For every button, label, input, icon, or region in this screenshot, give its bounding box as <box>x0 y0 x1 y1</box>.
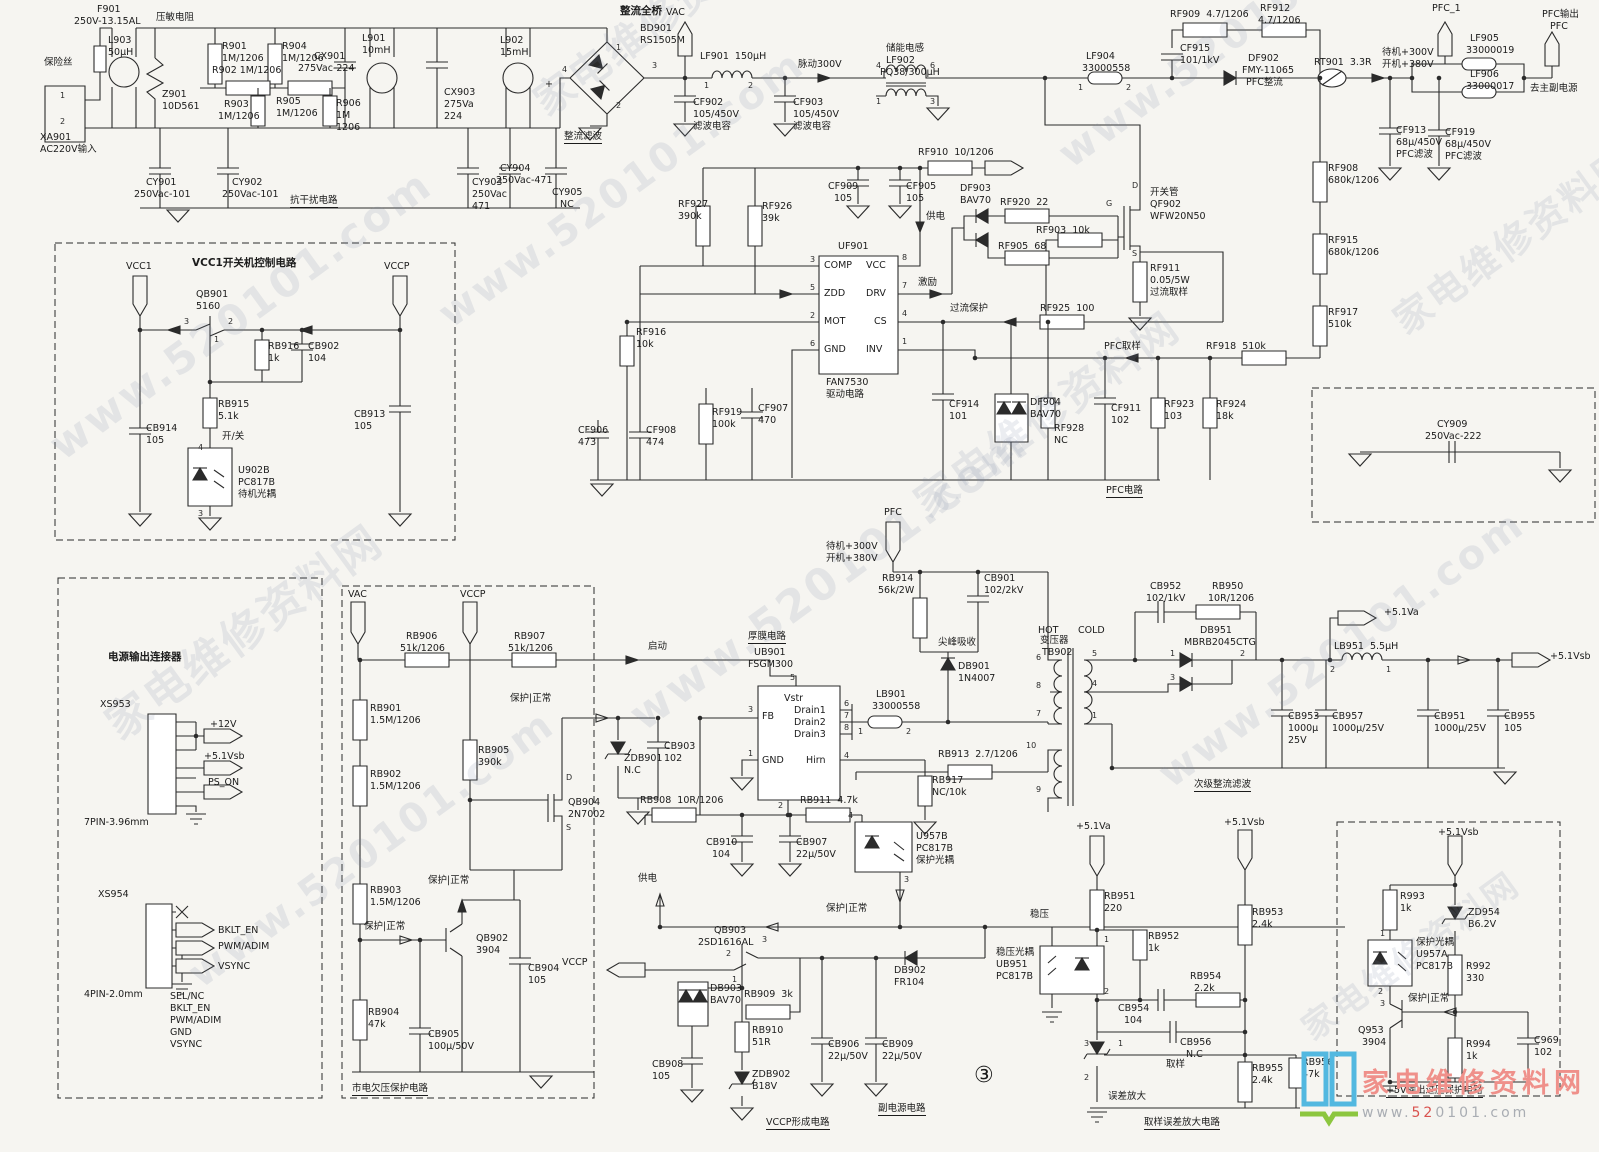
component-label: 22µ/50V <box>828 1052 868 1062</box>
component-label: CB914 <box>146 424 177 434</box>
component-label: RF903 10k <box>1036 226 1090 236</box>
component-label: XS954 <box>98 890 129 900</box>
component-label: CF902 <box>693 98 723 108</box>
component-label: 51k/1206 <box>400 644 445 654</box>
component-label: CB904 <box>528 964 559 974</box>
component-label: RF911 <box>1150 264 1180 274</box>
component-label: DB903 <box>710 984 742 994</box>
component-label: UB951 <box>996 960 1028 970</box>
component-label: RB908 10R/1206 <box>640 796 723 806</box>
component-label: 3 <box>1380 1000 1385 1008</box>
component-label: U902B <box>238 466 270 476</box>
component-label: PC817B <box>238 478 275 488</box>
component-label: LB901 <box>876 690 906 700</box>
component-label: G <box>1106 200 1112 208</box>
component-label: CF903 <box>793 98 823 108</box>
component-label: QB901 <box>196 290 228 300</box>
component-label: 2 <box>1126 84 1131 92</box>
component-label: CF905 <box>906 182 936 192</box>
component-label: RF912 <box>1260 4 1290 14</box>
component-label: 1 <box>902 338 907 346</box>
component-label: 56k/2W <box>878 586 914 596</box>
component-label: 3 <box>748 706 753 714</box>
component-label: QB902 <box>476 934 508 944</box>
component-label: 0.05/5W <box>1150 276 1190 286</box>
component-label: 250Vac-101 <box>222 190 279 200</box>
component-label: CF919 <box>1445 128 1475 138</box>
component-label: ZDB902 <box>752 1070 790 1080</box>
component-label: 滤波电容 <box>793 122 831 132</box>
component-label: 102/1kV <box>1146 594 1185 604</box>
component-label: ZDD <box>824 289 845 299</box>
component-label: 开机+380V <box>1382 60 1434 70</box>
component-label: 7 <box>844 712 849 720</box>
component-label: U957B <box>916 832 948 842</box>
component-label: Z901 <box>162 90 187 100</box>
component-label: 104 <box>1124 1016 1142 1026</box>
component-label: 整流滤波 <box>564 132 602 144</box>
component-label: VSYNC <box>170 1040 202 1050</box>
component-label: FMY-11065 <box>1242 66 1294 76</box>
component-label: RS1505M <box>640 36 685 46</box>
component-label: S <box>566 824 571 832</box>
component-label: RB904 <box>368 1008 399 1018</box>
component-label: 4 <box>876 62 881 70</box>
component-label: PWM/ADIM <box>218 942 269 952</box>
component-label: 2 <box>906 728 911 736</box>
component-label: Hirn <box>806 756 826 766</box>
component-label: 1k <box>1400 904 1412 914</box>
component-label: 1M <box>336 111 350 121</box>
component-label: 2.2k <box>1194 984 1215 994</box>
component-label: FB <box>762 712 774 722</box>
component-label: COMP <box>824 261 852 271</box>
component-label: 8 <box>902 254 907 262</box>
component-label: 1 <box>1078 84 1083 92</box>
component-label: RB914 <box>882 574 913 584</box>
component-label: 105 <box>834 194 852 204</box>
component-label: 7 <box>1036 710 1041 718</box>
component-label: VCC1开关机控制电路 <box>192 258 296 269</box>
schematic-wires <box>0 0 1599 1152</box>
component-label: 680k/1206 <box>1328 248 1379 258</box>
component-label: GND <box>762 756 784 766</box>
component-label: +5.1Vsb <box>1438 828 1479 838</box>
component-label: RB917 <box>932 776 963 786</box>
component-label: RF909 4.7/1206 <box>1170 10 1249 20</box>
component-label: CB906 <box>828 1040 859 1050</box>
component-label: GND <box>824 345 846 355</box>
component-label: QF902 <box>1150 200 1181 210</box>
component-label: CB913 <box>354 410 385 420</box>
component-label: 5160 <box>196 302 220 312</box>
component-label: 10R/1206 <box>1208 594 1254 604</box>
component-label: 过流取样 <box>1150 288 1188 298</box>
component-label: 1 <box>60 92 65 100</box>
component-label: DRV <box>866 289 886 299</box>
component-label: 启动 <box>648 642 667 652</box>
component-label: 1.5M/1206 <box>370 716 421 726</box>
component-label: PC817B <box>916 844 953 854</box>
component-label: R901 <box>222 42 247 52</box>
component-label: 2 <box>616 102 621 110</box>
component-label: 取样误差放大电路 <box>1144 1118 1220 1130</box>
component-label: 50µH <box>108 48 133 58</box>
component-label: D <box>566 774 572 782</box>
component-label: L903 <box>108 36 131 46</box>
component-label: 103 <box>1164 412 1182 422</box>
component-label: 供电 <box>638 874 657 884</box>
component-label: MOT <box>824 317 845 327</box>
component-label: 2N7002 <box>568 810 605 820</box>
component-label: CB953 <box>1288 712 1319 722</box>
component-label: UF901 <box>838 242 869 252</box>
component-label: 25V <box>1288 736 1307 746</box>
component-label: 保护|正常 <box>1408 994 1449 1004</box>
component-label: DF903 <box>960 184 991 194</box>
component-label: 4 <box>902 310 907 318</box>
component-label: 3 <box>904 876 909 884</box>
component-label: 1 <box>1092 712 1097 720</box>
component-label: 抗干扰电路 <box>290 196 338 208</box>
component-label: 102 <box>1111 416 1129 426</box>
component-label: 开关管 <box>1150 188 1179 198</box>
component-label: RF920 22 <box>1000 198 1048 208</box>
component-label: +5.1Va <box>1076 822 1111 832</box>
component-label: 4 <box>848 812 853 820</box>
component-label: 4 <box>1092 680 1097 688</box>
component-label: 250Vac-101 <box>134 190 191 200</box>
component-label: RB955 <box>1252 1064 1283 1074</box>
component-label: 9 <box>1036 786 1041 794</box>
component-label: 275Vac-224 <box>298 64 355 74</box>
component-label: 市电欠压保护电路 <box>352 1084 428 1096</box>
component-label: CX903 <box>444 88 475 98</box>
component-label: +5.1Vsb <box>204 752 245 762</box>
component-label: RB901 <box>370 704 401 714</box>
component-label: PFC滤波 <box>1445 152 1482 162</box>
component-label: N.C <box>1186 1050 1203 1060</box>
component-label: FSGM300 <box>748 660 793 670</box>
component-label: 2.4k <box>1252 920 1273 930</box>
component-label: 2 <box>1378 988 1383 996</box>
component-label: 6 <box>930 62 935 70</box>
component-label: CB956 <box>1180 1038 1211 1048</box>
component-label: 1 <box>1386 666 1391 674</box>
component-label: NC <box>1054 436 1068 446</box>
component-label: 次级整流滤波 <box>1194 780 1251 792</box>
component-label: 2 <box>228 318 233 326</box>
component-label: PC817B <box>1416 962 1453 972</box>
component-label: VAC <box>666 8 685 18</box>
component-label: 470 <box>758 416 776 426</box>
component-label: 15mH <box>500 48 529 58</box>
component-label: GND <box>170 1028 192 1038</box>
component-label: 稳压 <box>1030 910 1049 920</box>
component-label: RF917 <box>1328 308 1358 318</box>
component-label: D <box>1132 182 1138 190</box>
component-label: CF907 <box>758 404 788 414</box>
component-label: RB907 <box>514 632 545 642</box>
component-label: 1k <box>268 354 280 364</box>
component-label: BAV70 <box>1030 410 1061 420</box>
component-label: 2 <box>810 312 815 320</box>
component-label: COLD <box>1078 626 1105 636</box>
component-label: RF916 <box>636 328 666 338</box>
component-label: 104 <box>712 850 730 860</box>
component-label: 8 <box>844 724 849 732</box>
component-label: 误差放大 <box>1108 1092 1146 1102</box>
component-label: 保护光耦 <box>1416 938 1454 948</box>
component-label: Q953 <box>1358 1026 1384 1036</box>
component-label: 厚膜电路 <box>748 632 786 644</box>
component-label: 100µ/50V <box>428 1042 474 1052</box>
component-label: 1.5M/1206 <box>370 782 421 792</box>
component-label: BAV70 <box>710 996 741 1006</box>
component-label: CB909 <box>882 1040 913 1050</box>
component-label: 105 <box>146 436 164 446</box>
component-label: VCCP <box>384 262 410 272</box>
component-label: 电源输出连接器 <box>108 652 182 663</box>
component-label: 开机+380V <box>826 554 878 564</box>
component-label: CB908 <box>652 1060 683 1070</box>
component-label: 5 <box>1092 650 1097 658</box>
component-label: 474 <box>646 438 664 448</box>
component-label: VSYNC <box>218 962 250 972</box>
component-label: 1 <box>1104 936 1109 944</box>
component-label: 保护光耦 <box>916 856 954 866</box>
component-label: RF910 10/1206 <box>918 148 994 158</box>
component-label: 尖峰吸收 <box>938 638 976 648</box>
component-label: CF908 <box>646 426 676 436</box>
component-label: 去主副电源 <box>1530 84 1578 94</box>
component-label: CB901 <box>984 574 1015 584</box>
component-label: CF913 <box>1396 126 1426 136</box>
component-label: 1k <box>1148 944 1160 954</box>
component-label: 3 <box>1084 1040 1089 1048</box>
schematic-canvas: www.520101.com家电维修资料网www.520101.comwww.5… <box>0 0 1599 1152</box>
component-label: RF905 68 <box>998 242 1046 252</box>
component-label: 105 <box>906 194 924 204</box>
component-label: 1 <box>1380 930 1385 938</box>
component-label: INV <box>866 345 882 355</box>
component-label: 224 <box>444 112 462 122</box>
component-label: 5 <box>790 674 795 682</box>
component-label: 102/2kV <box>984 586 1023 596</box>
component-label: 待机+300V <box>1382 48 1434 58</box>
component-label: 33000019 <box>1466 46 1514 56</box>
component-label: 1000µ/25V <box>1434 724 1486 734</box>
component-label: L901 <box>362 34 385 44</box>
component-label: SEL/NC <box>170 992 204 1002</box>
component-label: 22µ/50V <box>882 1052 922 1062</box>
component-label: 1 <box>704 82 709 90</box>
component-label: FR104 <box>894 978 924 988</box>
component-label: R905 <box>276 97 301 107</box>
component-label: PWM/ADIM <box>170 1016 221 1026</box>
component-label: 101 <box>949 412 967 422</box>
component-label: 脉动300V <box>798 60 842 70</box>
component-label: L902 <box>500 36 523 46</box>
component-label: CF914 <box>949 400 979 410</box>
component-label: LB951 5.5µH <box>1334 642 1398 652</box>
component-label: CY904 <box>500 164 530 174</box>
component-label: 1M/1206 <box>222 54 264 64</box>
component-label: 保护|正常 <box>826 904 867 914</box>
component-label: DB901 <box>958 662 990 672</box>
component-label: RF908 <box>1328 164 1358 174</box>
component-label: 3 <box>810 256 815 264</box>
component-label: BKLT_EN <box>170 1004 210 1014</box>
component-label: RF919 <box>712 408 742 418</box>
component-label: VCCP形成电路 <box>766 1118 830 1130</box>
component-label: CB954 <box>1118 1004 1149 1014</box>
component-label: 1 <box>858 728 863 736</box>
component-label: 保护|正常 <box>428 876 469 886</box>
component-label: B18V <box>752 1082 777 1092</box>
component-label: 10mH <box>362 46 391 56</box>
component-label: 471 <box>472 202 490 212</box>
component-label: CY901 <box>146 178 176 188</box>
component-label: 2 <box>726 950 731 958</box>
component-label: 3 <box>1170 674 1175 682</box>
component-label: BAV70 <box>960 196 991 206</box>
book-icon <box>1296 1048 1362 1132</box>
component-label: 105 <box>354 422 372 432</box>
component-label: +5.1Vsb <box>1550 652 1591 662</box>
component-label: RF918 510k <box>1206 342 1266 352</box>
component-label: RF928 <box>1054 424 1084 434</box>
component-label: 供电 <box>926 212 945 222</box>
component-label: CB955 <box>1504 712 1535 722</box>
component-label: 250Vac <box>472 190 507 200</box>
component-label: 2 <box>778 802 783 810</box>
component-label: 2 <box>1104 988 1109 996</box>
component-label: 33000558 <box>1082 64 1130 74</box>
component-label: CY905 <box>552 188 582 198</box>
component-label: RB916 <box>268 342 299 352</box>
component-label: XS953 <box>100 700 131 710</box>
component-label: RF924 <box>1216 400 1246 410</box>
component-label: CB903 <box>664 742 695 752</box>
component-label: RB951 <box>1104 892 1135 902</box>
component-label: 390k <box>478 758 502 768</box>
component-label: WFW20N50 <box>1150 212 1206 222</box>
component-label: 105 <box>652 1072 670 1082</box>
component-label: RF915 <box>1328 236 1358 246</box>
component-label: 取样 <box>1166 1060 1185 1070</box>
component-label: RB950 <box>1212 582 1243 592</box>
component-label: 驱动电路 <box>826 390 864 400</box>
component-label: 1 <box>214 336 219 344</box>
component-label: 8 <box>1036 682 1041 690</box>
component-label: 滤波电容 <box>693 122 731 132</box>
component-label: 101/1kV <box>1180 56 1219 66</box>
component-label: LF904 <box>1086 52 1115 62</box>
component-label: 473 <box>578 438 596 448</box>
component-label: +12V <box>210 720 237 730</box>
component-label: CB905 <box>428 1030 459 1040</box>
component-label: 104 <box>308 354 326 364</box>
component-label: 102 <box>664 754 682 764</box>
component-label: PS_ON <box>208 778 239 788</box>
component-label: 变压器 <box>1040 636 1069 646</box>
component-label: C969 <box>1534 1036 1559 1046</box>
component-label: 2 <box>1330 666 1335 674</box>
component-label: LF901 150µH <box>700 52 766 62</box>
junction-dots <box>138 76 1527 1085</box>
component-label: 10 <box>1026 742 1036 750</box>
component-label: RB902 <box>370 770 401 780</box>
component-label: 68µ/450V <box>1396 138 1442 148</box>
component-label: ZDB901 <box>624 754 662 764</box>
component-label: 105 <box>1504 724 1522 734</box>
component-label: 2.4k <box>1252 1076 1273 1086</box>
component-label: DF904 <box>1030 398 1061 408</box>
component-label: 18k <box>1216 412 1234 422</box>
component-label: BD901 <box>640 24 672 34</box>
component-label: PFC_1 <box>1432 4 1461 14</box>
component-label: 整流全桥 <box>620 6 662 17</box>
component-label: F901 <box>97 5 121 15</box>
component-label: DB951 <box>1200 626 1232 636</box>
component-label: AC220V输入 <box>40 145 97 155</box>
component-label: 4 <box>844 752 849 760</box>
component-label: CF909 <box>828 182 858 192</box>
component-label: PC817B <box>996 972 1033 982</box>
component-label: Drain3 <box>794 730 826 740</box>
component-label: Drain2 <box>794 718 826 728</box>
component-label: 3904 <box>1362 1038 1386 1048</box>
component-label: LF902 <box>886 56 915 66</box>
component-label: 3 <box>762 936 767 944</box>
component-label: RB905 <box>478 746 509 756</box>
component-label: RF926 <box>762 202 792 212</box>
component-label: 250Vac-471 <box>496 176 553 186</box>
component-label: 250V-13.15AL <box>74 17 141 27</box>
component-label: 2 <box>60 118 65 126</box>
component-label: Vstr <box>784 694 803 704</box>
component-label: 105/450V <box>693 110 739 120</box>
component-label: +5.1Va <box>1384 608 1419 618</box>
component-label: 待机+300V <box>826 542 878 552</box>
component-label: RB954 <box>1190 972 1221 982</box>
component-label: 47k <box>368 1020 386 1030</box>
component-label: R993 <box>1400 892 1425 902</box>
component-label: 待机光耦 <box>238 490 276 500</box>
component-label: ZD954 <box>1468 908 1500 918</box>
component-label: PFC输出 <box>1542 10 1579 20</box>
component-label: 4.7/1206 <box>1258 16 1301 26</box>
component-label: PFC整流 <box>1246 78 1283 88</box>
component-label: CF915 <box>1180 44 1210 54</box>
component-label: 开/关 <box>222 432 244 442</box>
component-label: 副电源电路 <box>878 1104 926 1116</box>
component-label: 51k/1206 <box>508 644 553 654</box>
component-label: 680k/1206 <box>1328 176 1379 186</box>
component-label: RB903 <box>370 886 401 896</box>
component-label: Drain1 <box>794 706 826 716</box>
component-label: R992 <box>1466 962 1491 972</box>
component-label: 压敏电阻 <box>156 13 194 23</box>
component-label: 保险丝 <box>44 58 73 68</box>
component-label: 33000558 <box>872 702 920 712</box>
component-label: CF911 <box>1111 404 1141 414</box>
component-label: 330 <box>1466 974 1484 984</box>
component-label: RB913 2.7/1206 <box>938 750 1018 760</box>
component-label: 2 <box>1084 1074 1089 1082</box>
component-label: CB907 <box>796 838 827 848</box>
